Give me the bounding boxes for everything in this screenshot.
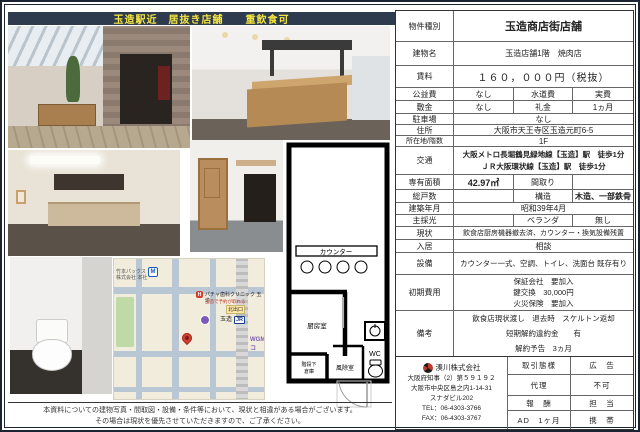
value-veranda: 無し: [573, 215, 633, 226]
access-line-2: ＪＲ大阪環状線【玉造】駅 徒歩1分: [481, 161, 605, 172]
company-address-2: スナダビル202: [430, 394, 473, 404]
map-shop-label: WGMコ: [250, 337, 265, 352]
label-built: 建築年月: [396, 203, 454, 214]
fee-header-row: 報 酬 担 当: [508, 395, 633, 410]
value-current-state: 飲食店厨房機器撤去済、カウンター・換気設備残置: [454, 227, 633, 239]
value-floor: 1F: [454, 136, 633, 146]
value-area: 42.97㎡: [454, 175, 513, 189]
terms-header-row: 取引態様 広 告: [508, 357, 633, 374]
rail-posts: [270, 50, 274, 76]
dark-opening: [244, 174, 276, 222]
label-veranda: ベランダ: [513, 215, 573, 226]
label-building-name: 建物名: [396, 42, 454, 65]
shelf: [236, 160, 276, 166]
label-access: 交通: [396, 147, 454, 174]
row-units: 総戸数 構造 木造、一部鉄骨: [396, 189, 633, 202]
counter-partition: [48, 202, 140, 226]
value-lighting: [454, 215, 513, 226]
ceiling-lights: [222, 32, 228, 38]
floor-plan-svg: カウンター 厨房室 階段下 倉庫 風除室 WC: [283, 140, 393, 408]
label-rent: 賃料: [396, 66, 454, 87]
map-hospital-icon: H: [196, 291, 203, 298]
notes-line-1: 飲食店現状渡し 退去時 スケルトン返却: [472, 311, 615, 326]
row-initial-cost: 初期費用 保証会社 要加入 鍵交換 30,000円 火災保険 要加入: [396, 274, 633, 310]
row-building-name: 建物名 玉造店舗1階 焼肉店: [396, 41, 633, 65]
label-parking: 駐車場: [396, 114, 454, 124]
map-railway: [236, 259, 248, 400]
wc-label: WC: [369, 351, 381, 358]
label-notes: 備考: [396, 311, 454, 356]
terms-value-row: 代理 不可: [508, 374, 633, 395]
label-layout: 間取り: [513, 175, 573, 189]
windbreak-label: 風除室: [336, 364, 354, 372]
row-equipment: 設備 カウンター一式、空調、トイレ、洗面台 既存有り: [396, 252, 633, 274]
toilet-icon-bowl: [369, 365, 383, 377]
value-address: 大阪市天王寺区玉造元町6-5: [454, 125, 633, 135]
row-access: 交通 大阪メトロ長堀鶴見緑地線【玉造】駅 徒歩1分 ＪＲ大阪環状線【玉造】駅 徒…: [396, 146, 633, 174]
map-road-v3: [210, 259, 216, 400]
upper-cabinet: [54, 174, 124, 190]
notes-line-3: 解約予告 3ヵ月: [515, 341, 572, 356]
under-stairs-label-1: 階段下: [301, 361, 316, 368]
contact-value: 携 帯: [570, 411, 633, 429]
value-access: 大阪メトロ長堀鶴見緑地線【玉造】駅 徒歩1分 ＪＲ大阪環状線【玉造】駅 徒歩1分: [454, 147, 633, 174]
company-name: 湊川株式会社: [436, 362, 481, 374]
company-name-row: 湊川株式会社: [423, 362, 481, 374]
value-parking: なし: [454, 114, 633, 124]
company-tel: TEL：06‑4303‑3766: [422, 404, 481, 414]
value-key-money: 1ヵ月: [573, 101, 633, 113]
floor-plan: カウンター 厨房室 階段下 倉庫 風除室 WC: [283, 140, 393, 408]
map-exit-label: 北出口: [226, 305, 245, 314]
value-water-fee: 実費: [573, 88, 633, 100]
row-current-state: 現状 飲食店厨房機器撤去済、カウンター・換気設備残置: [396, 226, 633, 239]
access-line-1: 大阪メトロ長堀鶴見緑地線【玉造】駅 徒歩1分: [463, 149, 625, 160]
label-move-in: 入居: [396, 240, 454, 252]
row-deposit: 敷金 なし 礼金 1ヵ月: [396, 100, 633, 113]
map-park: [116, 297, 134, 347]
company-license: 大阪府知事（2）第５９１９２: [407, 374, 495, 384]
wood-bench: [38, 104, 96, 126]
label-current-state: 現状: [396, 227, 454, 239]
door-panel: [204, 168, 220, 198]
label-equipment: 設備: [396, 253, 454, 274]
value-layout: [573, 175, 633, 189]
map-road-v2: [172, 259, 179, 400]
value-equipment: カウンター一式、空調、トイレ、洗面台 既存有り: [454, 253, 633, 274]
value-units: [454, 190, 513, 202]
map-company-label: 竹本パックス株式会社 本社: [116, 269, 150, 281]
tiled-floor: [8, 126, 190, 148]
under-stairs-label-2: 倉庫: [304, 368, 314, 375]
value-move-in: 相談: [454, 240, 633, 252]
row-rent: 賃料 １６０，０００円（税抜）: [396, 65, 633, 87]
company-fax: FAX：06‑4303‑3767: [422, 414, 481, 424]
photo-counter-room-2: [8, 150, 180, 256]
company-logo-icon: [423, 363, 433, 373]
value-notes: 飲食店現状渡し 退去時 スケルトン返却 短期解約違約金 有 解約予告 3ヵ月: [454, 311, 633, 356]
value-property-type: 玉造商店街店舗: [454, 11, 633, 41]
transaction-type-label: 取引態様: [508, 357, 570, 374]
label-property-type: 物件種別: [396, 11, 454, 41]
disclaimer-line-2: その場合は現状を優先させていただきますので、ご了承ください。: [95, 416, 305, 427]
map-metro-icon: M: [148, 267, 158, 277]
row-floor: 所在地/階数 1F: [396, 135, 633, 146]
value-building-name: 玉造店舗1階 焼肉店: [454, 42, 633, 65]
property-details-table: 物件種別 玉造商店街店舗 建物名 玉造店舗1階 焼肉店 賃料 １６０，０００円（…: [395, 10, 634, 430]
label-common-fee: 公益費: [396, 88, 454, 100]
map: 竹本パックス株式会社 本社 M H パチャ歯科クリニック 玉造 玉造で予約が取れ…: [113, 258, 265, 400]
fee-value-row: AD 1ヶ月 携 帯: [508, 410, 633, 429]
photo-exterior: [8, 26, 190, 148]
value-deposit: なし: [454, 101, 513, 113]
kitchen-label: 厨房室: [307, 321, 327, 330]
row-lighting: 主採光 ベランダ 無し: [396, 214, 633, 226]
label-area: 専有面積: [396, 175, 454, 189]
row-built: 建築年月 昭和39年4月: [396, 202, 633, 214]
label-key-money: 礼金: [513, 101, 573, 113]
property-flyer: 玉造駅近 居抜き店舗 重飲食可: [0, 0, 640, 432]
value-structure: 木造、一部鉄骨: [573, 190, 633, 202]
fluorescent-light: [30, 156, 100, 164]
label-structure: 構造: [513, 190, 573, 202]
photo-counter-room: [192, 26, 390, 150]
map-pin: [180, 331, 194, 345]
label-water-fee: 水道費: [513, 88, 573, 100]
counter-label: カウンター: [320, 247, 353, 256]
disclaimer: 本資料についての建物写真・間取図・設備・条件等において、現状と相違がある場合がご…: [8, 402, 392, 429]
notes-line-2: 短期解約違約金 有: [506, 326, 581, 341]
row-parking: 駐車場 なし: [396, 113, 633, 124]
side-wall: [82, 257, 112, 394]
label-initial-cost: 初期費用: [396, 275, 454, 310]
vending-machine: [158, 66, 170, 100]
contact-label: 担 当: [570, 396, 633, 410]
company-terms-grid: 取引態様 広 告 代理 不可 報 酬 担 当 AD 1ヶ月 携 帯: [508, 357, 633, 429]
header-banner: 玉造駅近 居抜き店舗 重飲食可: [8, 12, 395, 25]
row-address: 住所 大阪市天王寺区玉造元町6-5: [396, 124, 633, 135]
wall-frame: [16, 190, 26, 204]
company-info: 湊川株式会社 大阪府知事（2）第５９１９２ 大阪市中央区島之内1-14-31 ス…: [396, 357, 508, 429]
fee-label: 報 酬: [508, 396, 570, 410]
map-jr-badge: JR: [234, 316, 245, 324]
row-common-fee: 公益費 なし 水道費 実費: [396, 87, 633, 100]
value-built: 昭和39年4月: [454, 203, 633, 214]
initial-cost-line-3: 火災保険 要加入: [514, 298, 574, 309]
row-company: 湊川株式会社 大阪府知事（2）第５９１９２ 大阪市中央区島之内1-14-31 ス…: [396, 356, 633, 429]
label-deposit: 敷金: [396, 101, 454, 113]
value-initial-cost: 保証会社 要加入 鍵交換 30,000円 火災保険 要加入: [454, 275, 633, 310]
ceiling-rail: [262, 40, 352, 50]
plant: [66, 56, 80, 102]
photo-toilet: [10, 257, 112, 394]
counter-front: [247, 83, 347, 128]
row-notes: 備考 飲食店現状渡し 退去時 スケルトン返却 短期解約違約金 有 解約予告 3ヵ…: [396, 310, 633, 356]
value-rent: １６０，０００円（税抜）: [454, 66, 633, 87]
label-units: 総戸数: [396, 190, 454, 202]
fee-value: AD 1ヶ月: [508, 411, 570, 429]
row-area: 専有面積 42.97㎡ 間取り: [396, 174, 633, 189]
row-property-type: 物件種別 玉造商店街店舗: [396, 11, 633, 41]
map-metro-station-dot: [200, 315, 210, 325]
transaction-type-value: 代理: [508, 375, 570, 395]
value-common-fee: なし: [454, 88, 513, 100]
company-address-1: 大阪市中央区島之内1-14-31: [411, 384, 492, 394]
label-address: 住所: [396, 125, 454, 135]
label-floor: 所在地/階数: [396, 136, 454, 146]
header-title: 玉造駅近 居抜き店舗 重飲食可: [114, 11, 290, 26]
back-wall: [352, 56, 390, 120]
advertising-value: 不可: [570, 375, 633, 395]
toilet-icon-tank: [370, 360, 381, 365]
advertising-label: 広 告: [570, 357, 633, 374]
row-move-in: 入居 相談: [396, 239, 633, 252]
initial-cost-line-2: 鍵交換 30,000円: [513, 287, 573, 298]
map-station-label: 玉造: [220, 317, 232, 324]
toilet-bowl: [32, 339, 72, 371]
photo-hallway: [190, 140, 283, 252]
label-lighting: 主採光: [396, 215, 454, 226]
initial-cost-line-1: 保証会社 要加入: [514, 276, 574, 287]
disclaimer-line-1: 本資料についての建物写真・間取図・設備・条件等において、現状と相違がある場合がご…: [43, 405, 357, 416]
